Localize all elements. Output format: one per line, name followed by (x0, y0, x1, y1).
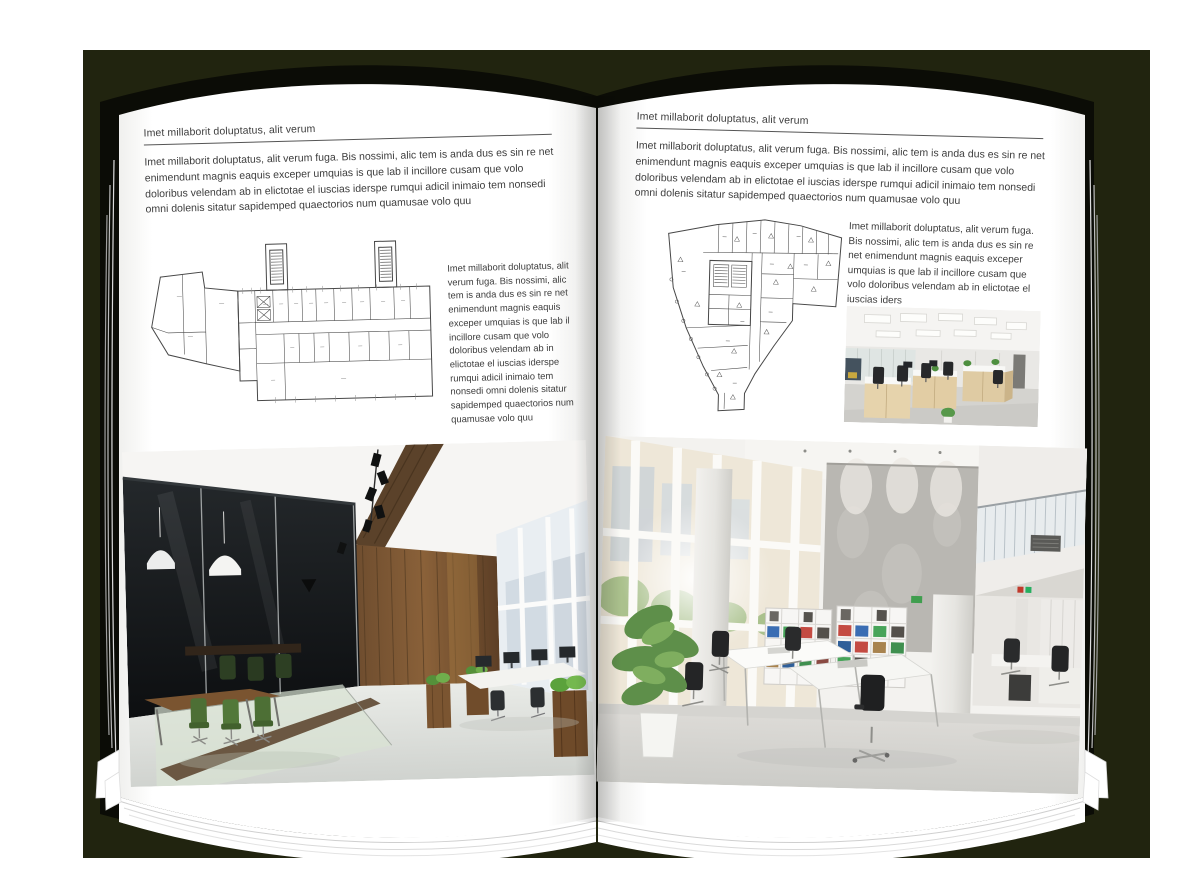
far-door (1013, 354, 1026, 388)
workstations-illustration (844, 306, 1041, 427)
left-floor-plan-figure (141, 226, 446, 424)
right-page-photo (596, 436, 1087, 794)
right-intro-paragraph: Imet millaborit doluptatus, alit verum f… (634, 138, 1048, 212)
atrium-office-illustration (596, 436, 1087, 794)
right-small-photo (844, 306, 1041, 427)
right-floor-plan-figure (644, 209, 847, 424)
right-side-text: Imet millaborit doluptatus, alit verum f… (847, 220, 1047, 312)
left-side-text: Imet millaborit doluptatus, alit verum f… (447, 258, 580, 426)
left-page: Imet millaborit doluptatus, alit verum I… (110, 80, 606, 823)
dark-office-illustration (122, 440, 595, 787)
floor-plan-drawing (644, 209, 847, 424)
right-page: Imet millaborit doluptatus, alit verum I… (590, 80, 1098, 824)
floor-plan-drawing (141, 226, 446, 424)
magazine-spread-mockup: { "canvas": { "background": "#ffffff", "… (0, 0, 1200, 891)
left-intro-paragraph: Imet millaborit doluptatus, alit verum f… (144, 145, 560, 219)
left-page-photo (122, 440, 595, 787)
exit-sign (911, 596, 922, 603)
